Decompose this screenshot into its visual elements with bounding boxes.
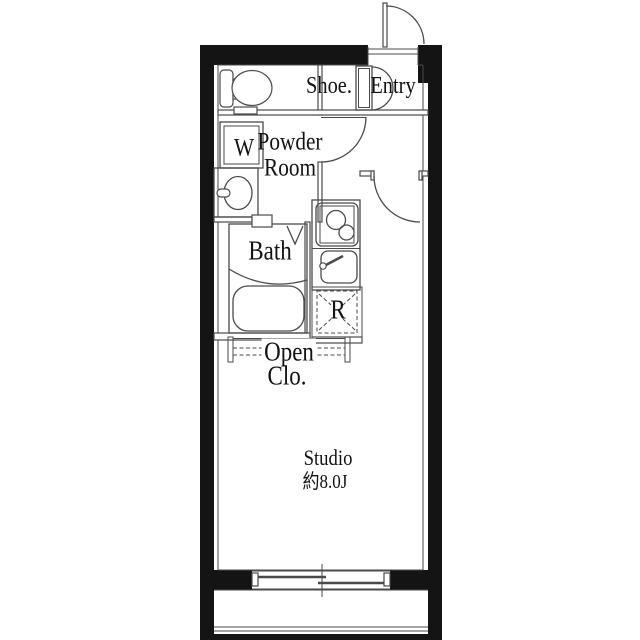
fridge-label: R xyxy=(330,297,345,324)
closet-label-line2: Clo. xyxy=(268,363,307,390)
shoe-cabinet-label: Shoe. xyxy=(306,74,352,98)
studio-door-icon xyxy=(374,176,420,222)
studio-label: Studio xyxy=(304,447,353,469)
balcony-edge xyxy=(214,590,428,631)
studio-size-label: 約8.0J xyxy=(303,472,348,492)
washbasin-icon xyxy=(214,168,258,217)
toilet-icon xyxy=(220,70,272,114)
bath-label: Bath xyxy=(248,238,291,265)
powder-room-door-icon xyxy=(321,117,366,162)
powder-room-label-line2: Room xyxy=(264,156,316,181)
floor-plan: Shoe. Entry W Powder Room Bath R Open Cl… xyxy=(0,0,640,640)
bathtub-icon xyxy=(229,215,307,333)
entry-label: Entry xyxy=(370,74,415,98)
powder-room-label-line1: Powder xyxy=(258,130,323,155)
entry-door-icon xyxy=(368,3,424,54)
kitchen-sink-icon xyxy=(320,251,357,283)
sliding-window-icon xyxy=(252,564,390,597)
washer-label: W xyxy=(234,136,254,161)
